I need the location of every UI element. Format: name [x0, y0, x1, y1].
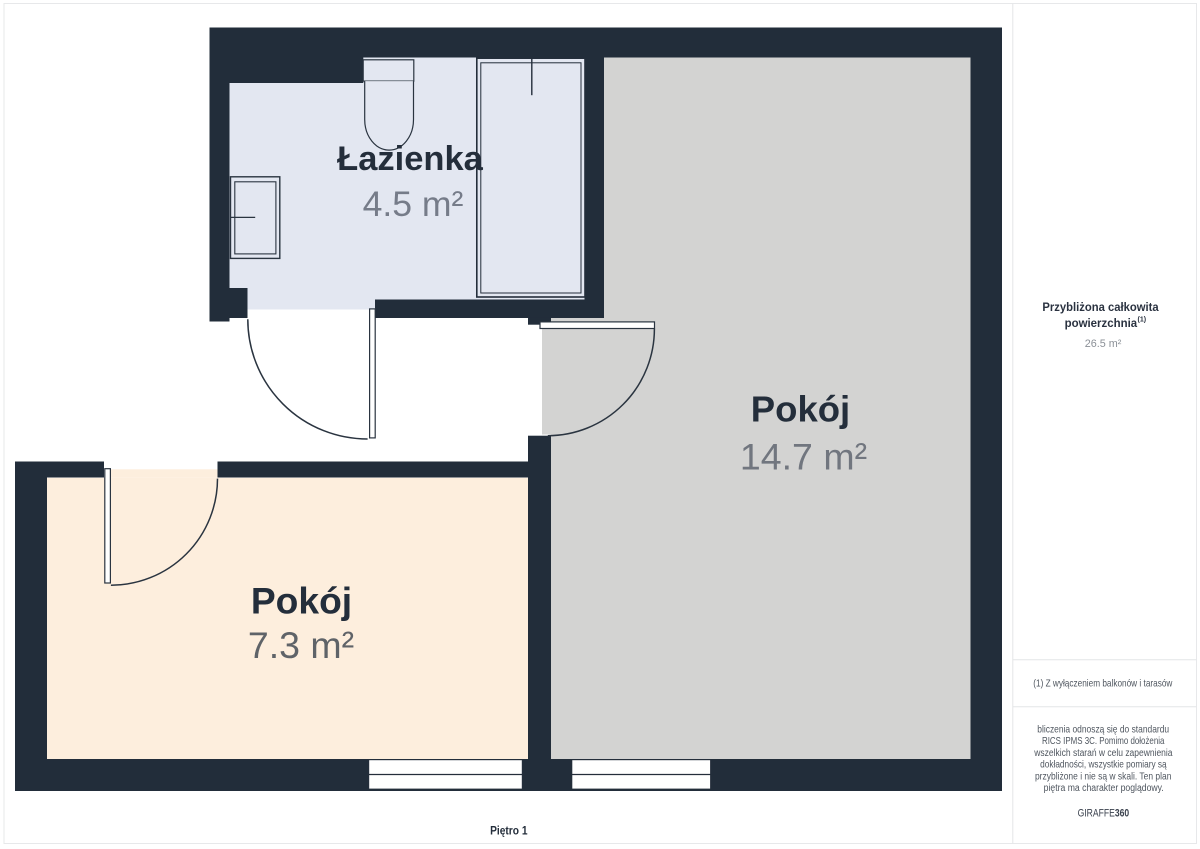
svg-text:(1): (1) [1138, 317, 1147, 324]
svg-text:7.3 m²: 7.3 m² [248, 624, 354, 666]
svg-text:Przybliżona całkowita: Przybliżona całkowita [1042, 302, 1159, 314]
svg-text:wszelkich starań w celu zapewn: wszelkich starań w celu zapewnienia [1033, 747, 1173, 758]
svg-text:Piętro 1: Piętro 1 [490, 825, 527, 838]
svg-text:Pokój: Pokój [251, 579, 352, 621]
svg-text:powierzchnia: powierzchnia [1065, 317, 1138, 330]
svg-text:przybliżone i nie są w skali.: przybliżone i nie są w skali. Ten plan [1035, 771, 1171, 782]
svg-text:dokładności, wszystkie pomiary: dokładności, wszystkie pomiary są [1040, 759, 1167, 770]
svg-text:Pokój: Pokój [751, 389, 850, 430]
svg-text:RICS IPMS 3C. Pomimo dołożenia: RICS IPMS 3C. Pomimo dołożenia [1042, 735, 1165, 746]
svg-text:Łazienka: Łazienka [337, 140, 484, 178]
svg-text:piętra ma charakter poglądowy.: piętra ma charakter poglądowy. [1044, 783, 1164, 794]
svg-text:GIRAFFE360: GIRAFFE360 [1078, 807, 1130, 819]
svg-text:14.7 m²: 14.7 m² [740, 436, 867, 478]
svg-text:bliczenia odnoszą się do stand: bliczenia odnoszą się do standardu [1037, 724, 1169, 735]
svg-text:26.5 m²: 26.5 m² [1085, 338, 1122, 350]
svg-text:(1) Z wyłączeniem balkonów i t: (1) Z wyłączeniem balkonów i tarasów [1033, 678, 1172, 689]
svg-text:4.5 m²: 4.5 m² [363, 184, 464, 224]
